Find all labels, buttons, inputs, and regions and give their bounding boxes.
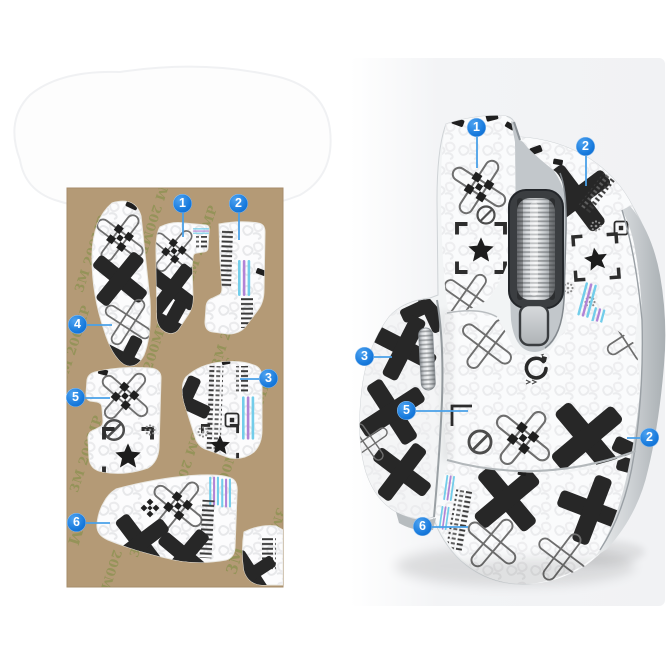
callout-sheet-2: 2 — [229, 194, 248, 213]
product-image: 3M 200MP 3M 200MP 3M 200MP 3M 200MP 3M 2… — [0, 0, 671, 671]
callout-label: 3 — [361, 350, 368, 363]
callout-label: 6 — [419, 520, 426, 533]
product-illustration: 3M 200MP 3M 200MP 3M 200MP 3M 200MP 3M 2… — [0, 0, 671, 671]
scroll-wheel — [509, 190, 563, 308]
sticker-sheet: 3M 200MP 3M 200MP 3M 200MP 3M 200MP 3M 2… — [54, 176, 289, 602]
callout-mouse-6: 6 — [413, 517, 432, 536]
callout-label: 6 — [73, 516, 80, 529]
callout-mouse-2b: 2 — [640, 428, 659, 447]
callout-sheet-5: 5 — [66, 388, 85, 407]
callout-label: 3 — [265, 372, 272, 385]
callout-mouse-5: 5 — [397, 401, 416, 420]
mode-shift-button — [520, 305, 548, 345]
callout-sheet-3: 3 — [259, 369, 278, 388]
callout-label: 1 — [473, 121, 480, 134]
callout-mouse-2: 2 — [576, 137, 595, 156]
callout-label: 2 — [235, 197, 242, 210]
callout-sheet-6: 6 — [67, 513, 86, 532]
callout-mouse-1: 1 — [467, 118, 486, 137]
callout-label: 2 — [582, 140, 589, 153]
callout-mouse-3: 3 — [355, 347, 374, 366]
thumb-wheel — [418, 328, 435, 391]
callout-label: 5 — [403, 404, 410, 417]
callout-sheet-4: 4 — [68, 315, 87, 334]
callout-label: 4 — [74, 318, 81, 331]
callout-label: 2 — [646, 431, 653, 444]
callout-label: 1 — [179, 197, 186, 210]
callout-label: 5 — [72, 391, 79, 404]
callout-sheet-1: 1 — [173, 194, 192, 213]
